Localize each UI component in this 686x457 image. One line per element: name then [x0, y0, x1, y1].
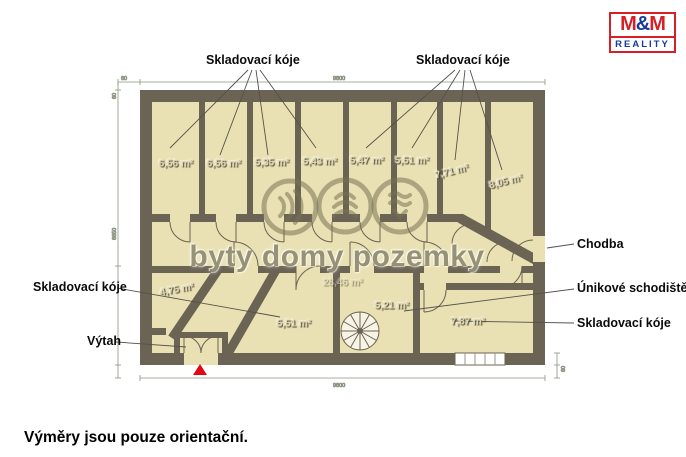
label-storage-units-top-left: Skladovací kóje [206, 53, 300, 67]
signal-right-icon [280, 191, 301, 223]
signal-up-icon [334, 194, 356, 217]
watermark-icons [0, 0, 686, 457]
logo-mm-text: M&M [611, 14, 674, 36]
floorplan-page: 60 9800 60 6650 9800 60 6,56 [0, 0, 686, 457]
watermark-circle [264, 181, 316, 233]
watermark-circle [374, 180, 426, 232]
label-storage-units-top-right: Skladovací kóje [416, 53, 510, 67]
mm-reality-logo: M&M REALITY [609, 12, 676, 53]
label-corridor: Chodba [577, 237, 624, 251]
watermark-text: byty domy pozemky [189, 240, 484, 274]
signal-down-icon [390, 193, 410, 217]
watermark-circle [319, 180, 371, 232]
disclaimer-text: Výměry jsou pouze orientační. [24, 429, 248, 447]
label-storage-units-right: Skladovací kóje [577, 316, 671, 330]
logo-reality-text: REALITY [611, 36, 674, 51]
label-storage-units-left: Skladovací kóje [33, 280, 127, 294]
label-escape-staircase: Únikové schodiště [577, 281, 686, 295]
label-elevator: Výtah [87, 334, 121, 348]
